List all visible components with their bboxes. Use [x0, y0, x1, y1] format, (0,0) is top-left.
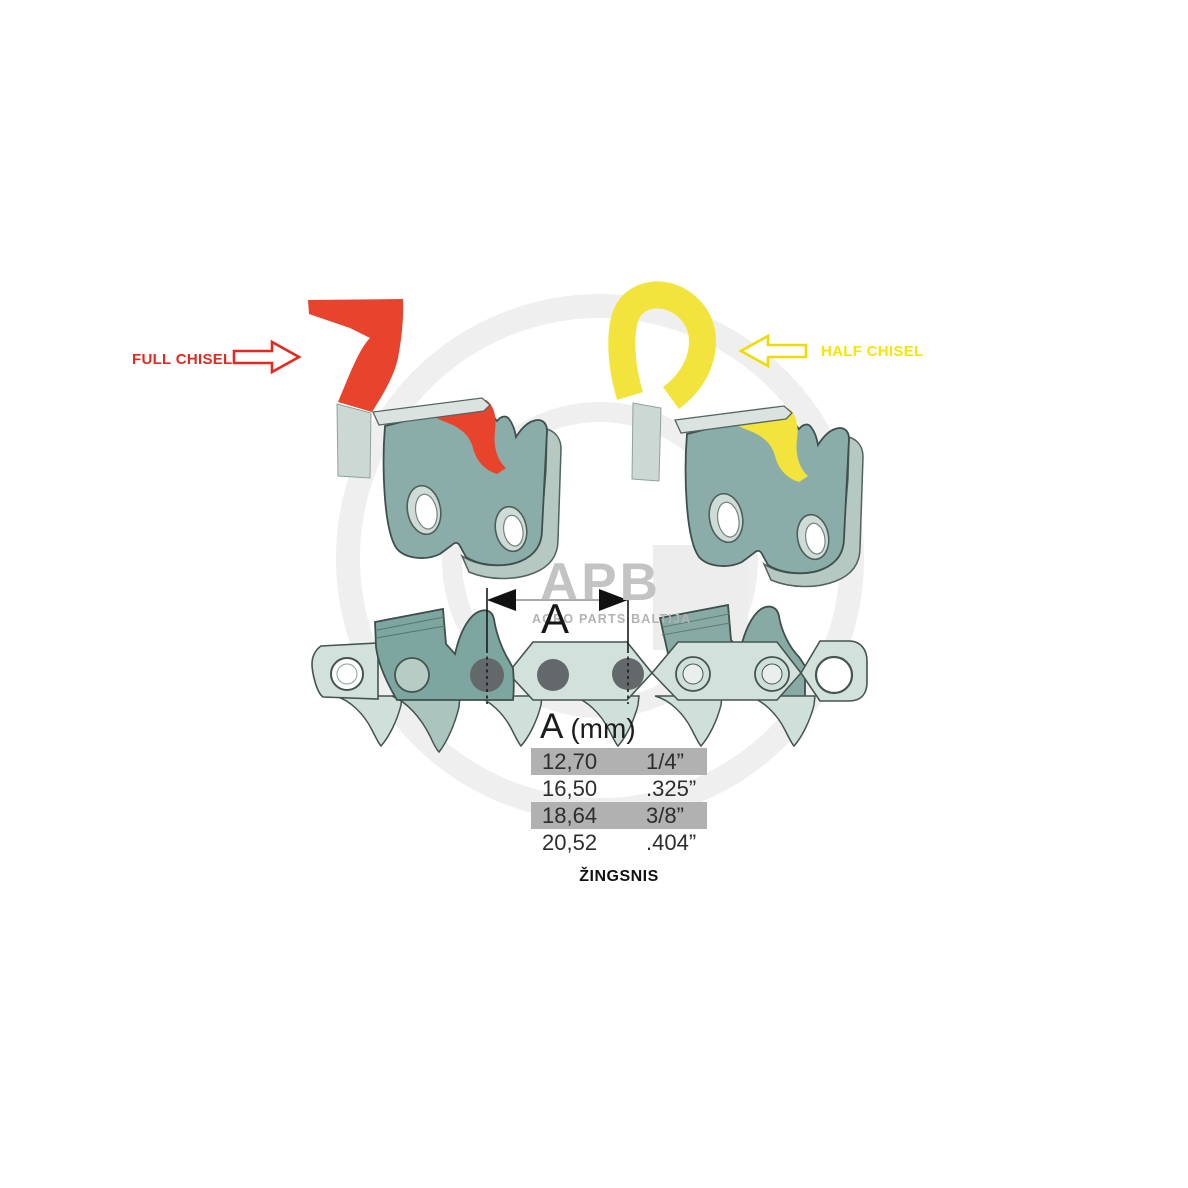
pitch-mm-value: 18,64: [542, 802, 597, 829]
half-chisel-cutter-shank: [632, 403, 661, 481]
chain-link-right: [675, 406, 863, 587]
pitch-table-row: 16,50 .325”: [531, 775, 707, 802]
full-chisel-label: FULL CHISEL: [132, 351, 233, 368]
pitch-inch-value: 1/4”: [646, 748, 684, 775]
pitch-mm-value: 12,70: [542, 748, 597, 775]
pitch-table-row: 18,64 3/8”: [531, 802, 707, 829]
pitch-mm-value: 16,50: [542, 775, 597, 802]
pitch-table-header-unit: (mm): [570, 715, 635, 743]
full-chisel-cutter-profile: [308, 299, 403, 412]
full-chisel-arrow-icon: [234, 342, 299, 372]
pitch-table-caption: ŽINGSNIS: [531, 868, 707, 886]
product-diagram: APB AGRO PARTS BALTIJA FULL CHISEL HALF …: [0, 0, 1188, 1188]
pitch-table-header-letter: A: [540, 709, 563, 744]
pitch-dimension-label: A: [541, 598, 569, 640]
pitch-table-row: 12,70 1/4”: [531, 748, 707, 775]
pitch-inch-value: 3/8”: [646, 802, 684, 829]
pitch-table-header: A (mm): [540, 709, 636, 744]
half-chisel-label: HALF CHISEL: [821, 343, 923, 360]
chain-link-left: [373, 398, 561, 579]
pitch-table-row: 20,52 .404”: [531, 829, 707, 856]
pitch-mm-value: 20,52: [542, 829, 597, 856]
pitch-inch-value: .404”: [646, 829, 696, 856]
pitch-inch-value: .325”: [646, 775, 696, 802]
arrowhead-left-icon: [487, 589, 516, 611]
full-chisel-cutter-shank: [337, 404, 371, 478]
pitch-table: 12,70 1/4” 16,50 .325” 18,64 3/8” 20,52 …: [531, 748, 707, 856]
